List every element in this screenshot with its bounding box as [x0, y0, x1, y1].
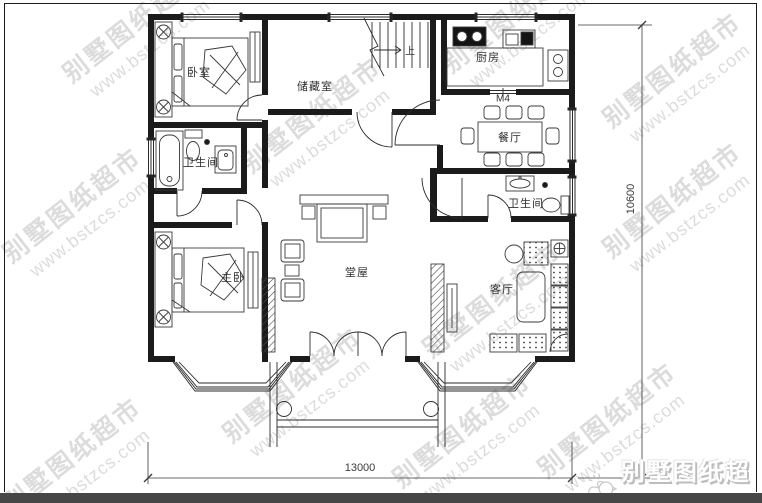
- side-table: [505, 245, 523, 263]
- plant-stand: [551, 240, 568, 257]
- window-dining-right: [568, 108, 576, 162]
- door-bathroom-right-side: [422, 178, 462, 218]
- bed: [172, 38, 248, 106]
- console-table: [300, 195, 388, 204]
- chair: [528, 106, 544, 119]
- kitchen-fixtures: [447, 27, 568, 86]
- bay-window-left: [173, 362, 292, 391]
- dimension-lines: [144, 21, 652, 484]
- sofa-cushion: [551, 330, 568, 351]
- frame-border-top: [4, 3, 757, 4]
- door-storage: [357, 112, 392, 147]
- sofa-cushion: [551, 308, 568, 329]
- folding-door-hall: [310, 332, 406, 356]
- bottom-bar: [0, 493, 762, 503]
- hall-furniture: [281, 195, 388, 301]
- porch: [270, 362, 445, 447]
- fan-icon: [157, 100, 171, 114]
- chair: [484, 106, 500, 119]
- column: [424, 402, 439, 417]
- sink: [215, 146, 236, 173]
- sofa-cushion: [490, 334, 517, 352]
- sofa-cushion: [519, 334, 546, 352]
- window-storage-top: [328, 13, 392, 22]
- sofa-cushion: [551, 286, 568, 307]
- chair: [546, 128, 559, 144]
- frame-border-left: [4, 3, 5, 492]
- door-bathroom-right-bottom: [488, 195, 511, 218]
- door-m4: [490, 88, 516, 96]
- dining-furniture: [461, 106, 559, 166]
- toilet: [542, 196, 569, 214]
- window-bathroom-left: [147, 138, 155, 177]
- bathroom-left-fixtures: [156, 130, 236, 190]
- door-bedroom: [237, 95, 262, 120]
- bay-window-right: [418, 362, 537, 391]
- fan-icon: [157, 310, 171, 324]
- tea-table: [285, 265, 299, 276]
- floor-drain: [205, 140, 210, 145]
- master-bedroom-furniture: [155, 232, 258, 327]
- chair: [506, 153, 522, 166]
- floor-plan-drawing: [0, 0, 762, 503]
- cabinet: [524, 242, 548, 265]
- chair: [461, 128, 474, 144]
- door-bathroom-left: [177, 191, 202, 216]
- fan-icon: [157, 235, 171, 249]
- sink: [506, 176, 534, 191]
- hatched-wall-piers: [262, 264, 444, 352]
- floor-drain: [543, 183, 548, 188]
- frame-border-right: [756, 3, 757, 492]
- cooktop-module: [503, 30, 535, 48]
- floor-plan-page: 别墅图纸超市www.bstzcs.com 别墅图纸超市www.bstzcs.co…: [0, 0, 762, 503]
- stair-break-line: [364, 18, 384, 76]
- interior-walls: [148, 14, 575, 362]
- tv-cabinet: [447, 284, 457, 332]
- armchair: [281, 279, 304, 301]
- sofa-cushion: [551, 264, 568, 285]
- living-room-furniture: [447, 240, 568, 352]
- pillow: [174, 44, 182, 70]
- fan-icon: [157, 25, 171, 39]
- pillow: [174, 254, 182, 279]
- door-master-bedroom: [237, 200, 262, 225]
- stool: [302, 206, 315, 219]
- bathroom-right-fixtures: [506, 176, 569, 214]
- chair: [506, 106, 522, 119]
- window-bedroom-top: [181, 13, 242, 22]
- coffee-table: [517, 272, 545, 322]
- chair: [528, 153, 544, 166]
- toilet: [185, 130, 202, 161]
- double-sink: [548, 50, 568, 81]
- chair: [484, 153, 500, 166]
- counter: [447, 48, 543, 86]
- dining-table: [478, 122, 542, 152]
- pillow: [174, 76, 182, 102]
- column: [277, 402, 292, 417]
- stove: [453, 27, 486, 46]
- window-kitchen-top: [475, 13, 537, 22]
- square-table: [317, 204, 367, 242]
- stool: [373, 206, 386, 219]
- armchair: [281, 240, 304, 262]
- stairs: [364, 18, 428, 76]
